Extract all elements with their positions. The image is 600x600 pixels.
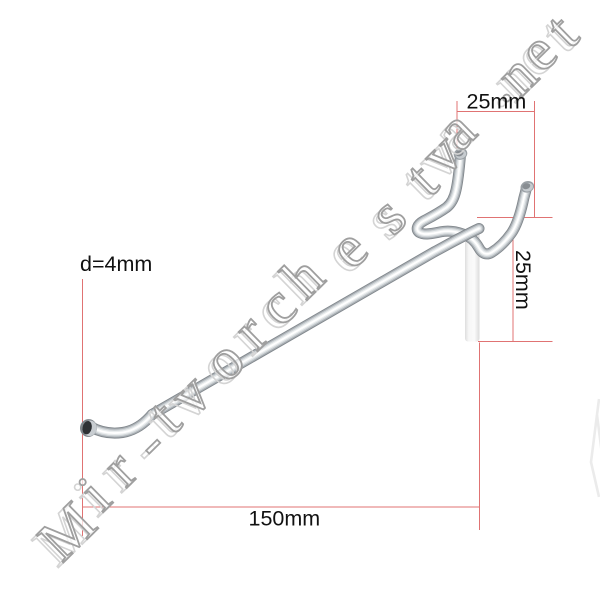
svg-text:d=4mm: d=4mm (80, 252, 152, 276)
svg-text:25mm: 25mm (467, 90, 527, 114)
svg-text:150mm: 150mm (249, 507, 321, 531)
svg-text:25mm: 25mm (511, 250, 535, 310)
